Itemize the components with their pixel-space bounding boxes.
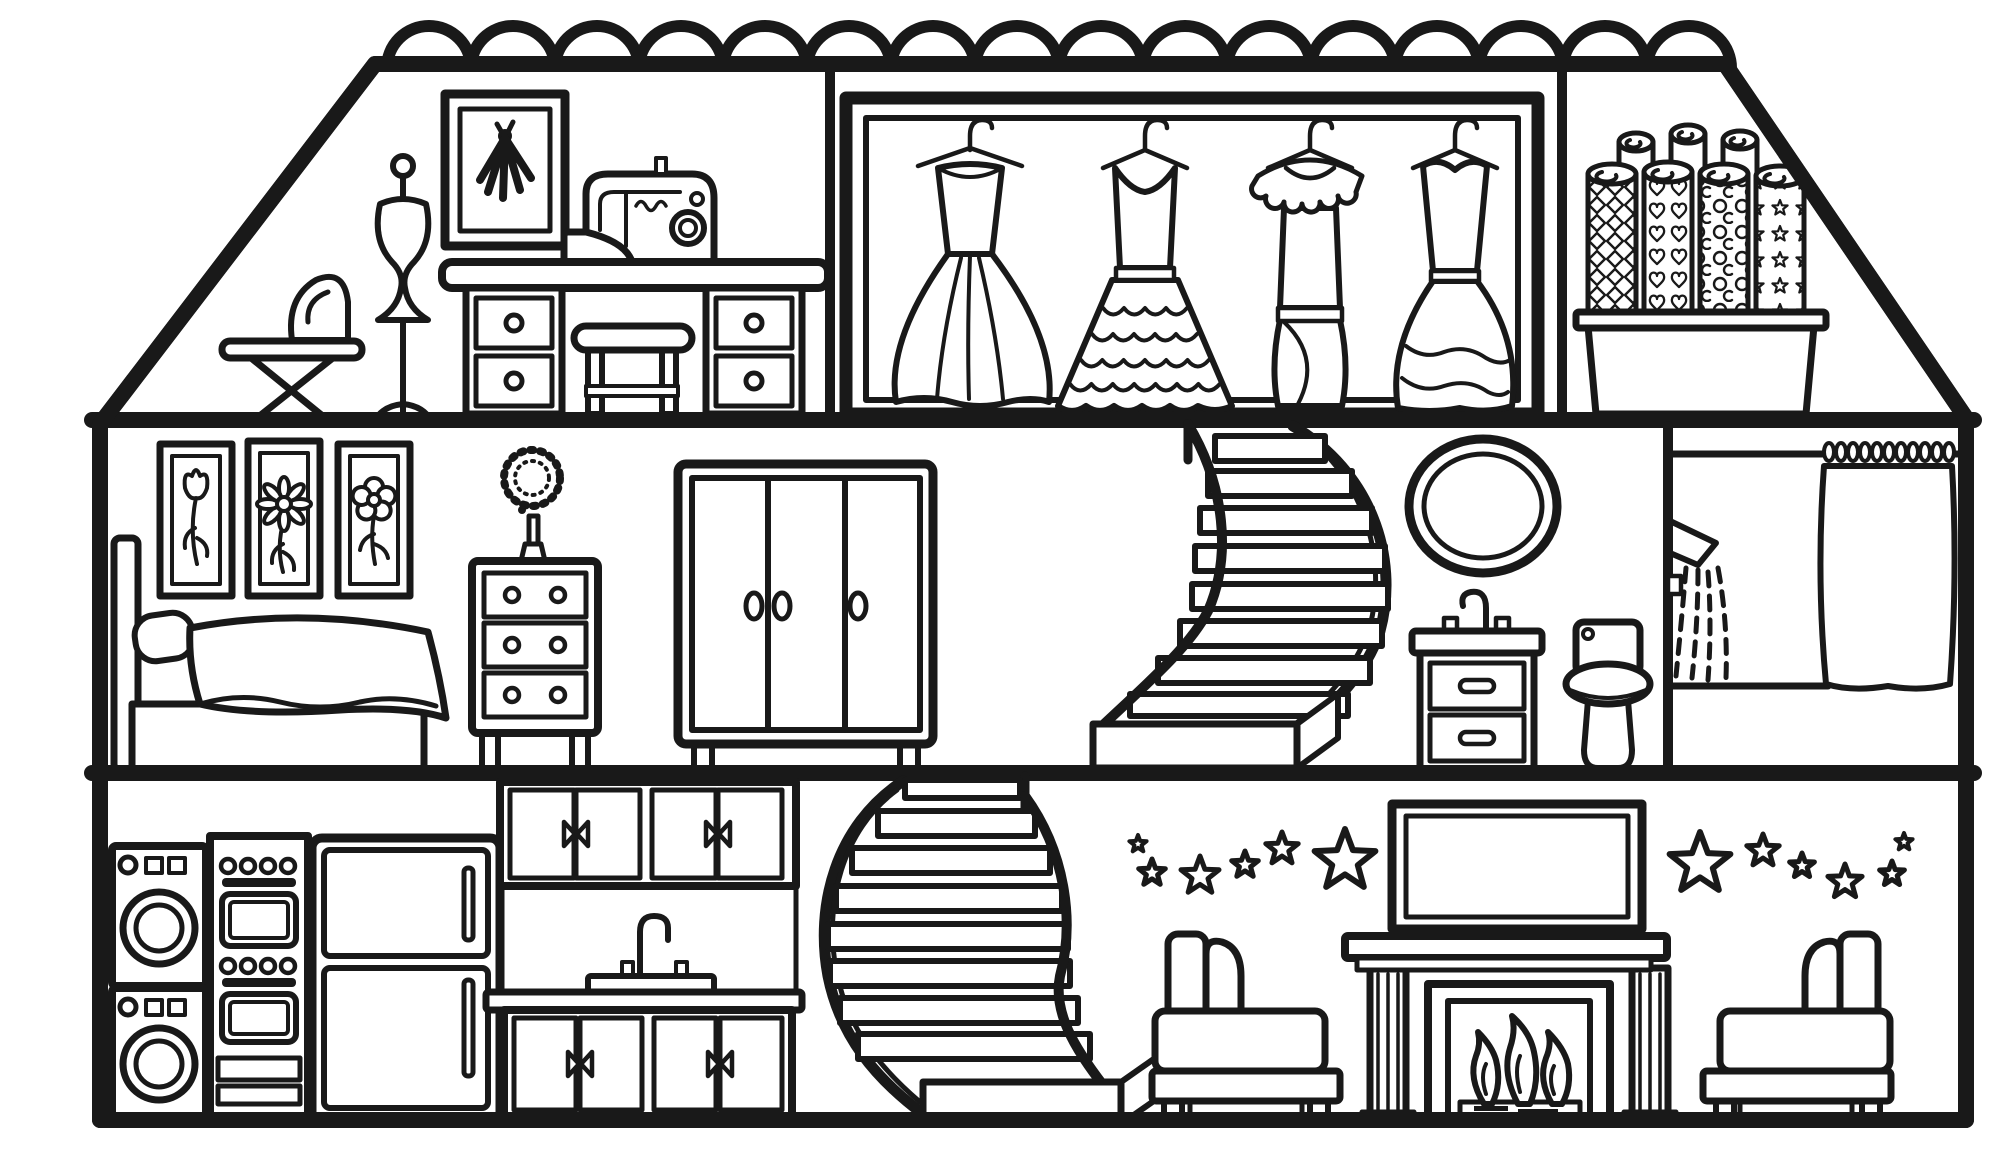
mantel-under-shelf xyxy=(1357,958,1651,970)
television xyxy=(1392,804,1642,929)
upper-cabinets xyxy=(500,782,796,886)
oval-mirror xyxy=(1409,439,1557,573)
stair-base-step xyxy=(1093,724,1297,768)
toilet-pedestal xyxy=(1584,700,1632,768)
dress-closet xyxy=(846,98,1538,414)
mantel-shelf xyxy=(1345,936,1667,958)
fabric-storage-box xyxy=(1576,312,1826,414)
double-oven xyxy=(210,836,308,1122)
dryer xyxy=(112,988,206,1122)
wall-art-daisy xyxy=(248,441,320,596)
wardrobe-three-doors xyxy=(678,464,933,770)
wall-art-blossom xyxy=(338,444,410,596)
framed-dress-sketch xyxy=(445,94,565,246)
refrigerator xyxy=(312,838,500,1122)
wall-art-tulip xyxy=(160,444,232,596)
washing-machine xyxy=(112,846,206,986)
dollhouse-coloring-page: Dollhouse cross-section coloring page xyxy=(40,16,2000,1149)
lower-cabinets xyxy=(504,1010,792,1118)
curtain-rings xyxy=(1824,443,1954,461)
shower-shelf xyxy=(1668,576,1681,594)
blanket xyxy=(190,618,446,718)
